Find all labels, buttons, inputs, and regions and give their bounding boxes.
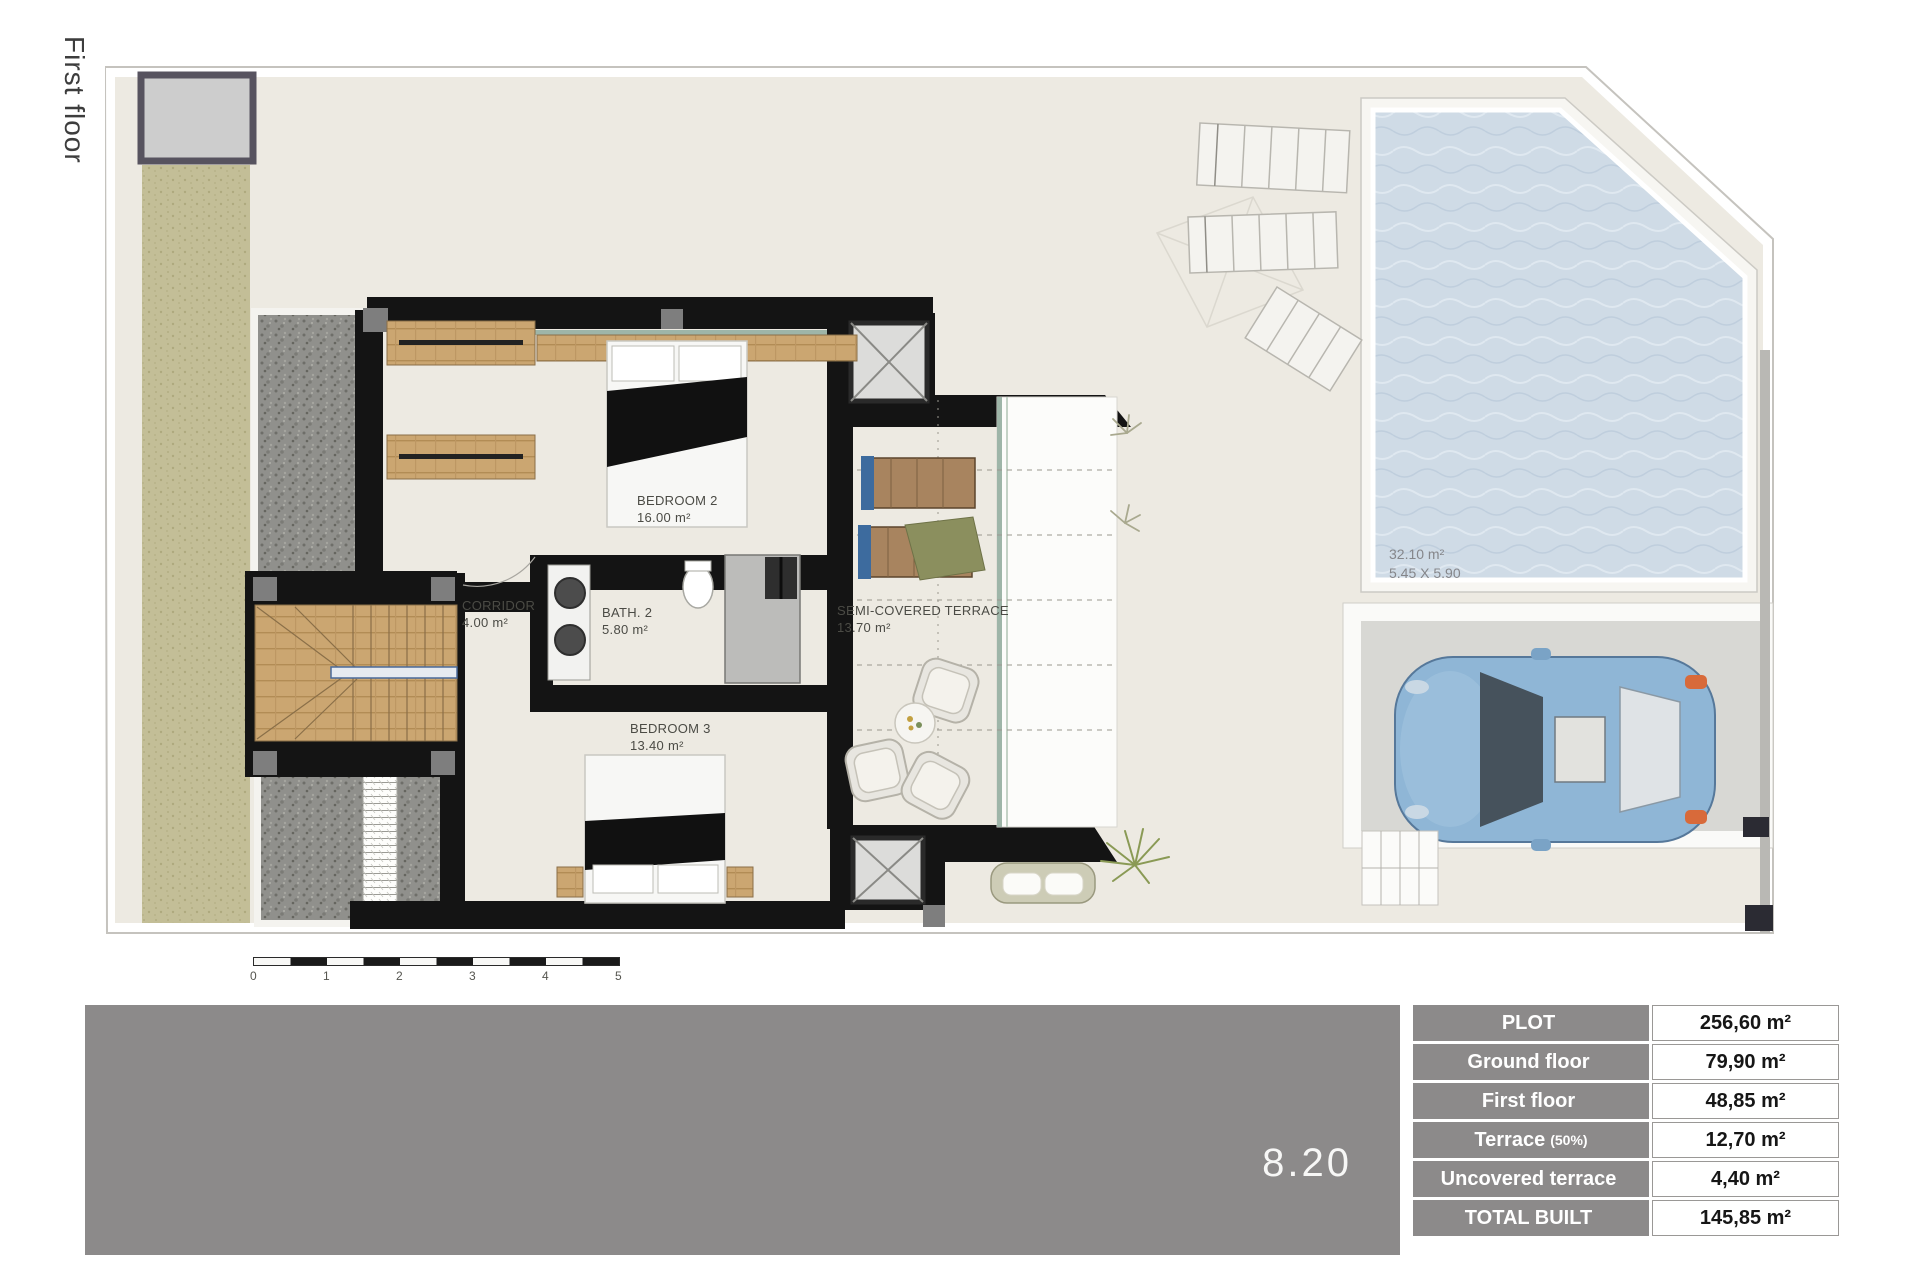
table-row-value: 256,60 m²	[1652, 1005, 1839, 1041]
room-area-bedroom3: 13.40 m²	[630, 738, 684, 753]
window-glass	[525, 330, 827, 335]
sink-icon	[555, 578, 585, 608]
room-label-bath2: BATH. 2	[602, 605, 652, 620]
room-area-corridor: 4.00 m²	[462, 615, 509, 630]
bench	[991, 863, 1095, 903]
table-row-label: Ground floor	[1413, 1044, 1649, 1080]
table-row-value: 145,85 m²	[1652, 1200, 1839, 1236]
table-row-value: 48,85 m²	[1652, 1083, 1839, 1119]
sink-icon	[555, 625, 585, 655]
floor-plan-svg: 32.10 m² 5.45 X 5.90	[105, 65, 1775, 935]
room-label-terrace: SEMI-COVERED TERRACE	[837, 603, 1009, 618]
row-label-text: TOTAL BUILT	[1465, 1207, 1592, 1230]
scale-label: 4	[542, 969, 549, 983]
summary-table: PLOT 256,60 m² Ground floor 79,90 m² Fir…	[1413, 1005, 1839, 1236]
table-row-label: TOTAL BUILT	[1413, 1200, 1649, 1236]
side-table	[895, 703, 935, 743]
staircase	[255, 605, 457, 741]
room-label-bedroom2: BEDROOM 2	[637, 493, 718, 508]
shower	[725, 555, 800, 683]
row-label-text: Uncovered terrace	[1441, 1168, 1617, 1191]
skylight-top	[851, 323, 927, 401]
gravel-patch-upper	[251, 308, 367, 580]
scale-label: 5	[615, 969, 622, 983]
scale-label: 1	[323, 969, 330, 983]
garden-strip	[142, 165, 250, 923]
scale-label: 2	[396, 969, 403, 983]
row-label-suffix: (50%)	[1550, 1132, 1587, 1148]
pool-area: 32.10 m²	[1389, 546, 1445, 562]
table-row-label: PLOT	[1413, 1005, 1649, 1041]
skylight-bottom	[853, 838, 923, 902]
room-area-terrace: 13.70 m²	[837, 620, 891, 635]
bed-bedroom3	[557, 755, 753, 903]
room-label-corridor: CORRIDOR	[462, 598, 535, 613]
page: First floor	[0, 0, 1920, 1280]
table-row-value: 12,70 m²	[1652, 1122, 1839, 1158]
utility-box	[141, 75, 253, 161]
toilet-icon	[683, 561, 713, 608]
room-area-bath2: 5.80 m²	[602, 622, 649, 637]
scale-label: 0	[250, 969, 257, 983]
car	[1395, 648, 1715, 851]
entry-steps	[1362, 831, 1438, 905]
plan-number: 8.20	[1262, 1141, 1352, 1186]
table-row-label: Uncovered terrace	[1413, 1161, 1649, 1197]
row-label-text: PLOT	[1502, 1012, 1555, 1035]
table-row-value: 4,40 m²	[1652, 1161, 1839, 1197]
stair-handrail	[331, 667, 457, 678]
terrace-deck	[997, 397, 1117, 827]
pool-dimensions: 5.45 X 5.90	[1389, 565, 1461, 581]
row-label-text: Ground floor	[1467, 1051, 1589, 1074]
table-row-label: Terrace(50%)	[1413, 1122, 1649, 1158]
room-label-bedroom3: BEDROOM 3	[630, 721, 711, 736]
room-area-bedroom2: 16.00 m²	[637, 510, 691, 525]
row-label-text: Terrace	[1474, 1129, 1545, 1152]
row-label-text: First floor	[1482, 1090, 1575, 1113]
table-row-label: First floor	[1413, 1083, 1649, 1119]
floor-label: First floor	[58, 36, 90, 164]
footer-bar: 8.20	[85, 1005, 1400, 1255]
scale-strip	[253, 957, 620, 966]
floor-plan: 32.10 m² 5.45 X 5.90	[105, 65, 1775, 935]
table-row-value: 79,90 m²	[1652, 1044, 1839, 1080]
scale-label: 3	[469, 969, 476, 983]
scale-bar: 0 1 2 3 4 5	[253, 957, 618, 987]
